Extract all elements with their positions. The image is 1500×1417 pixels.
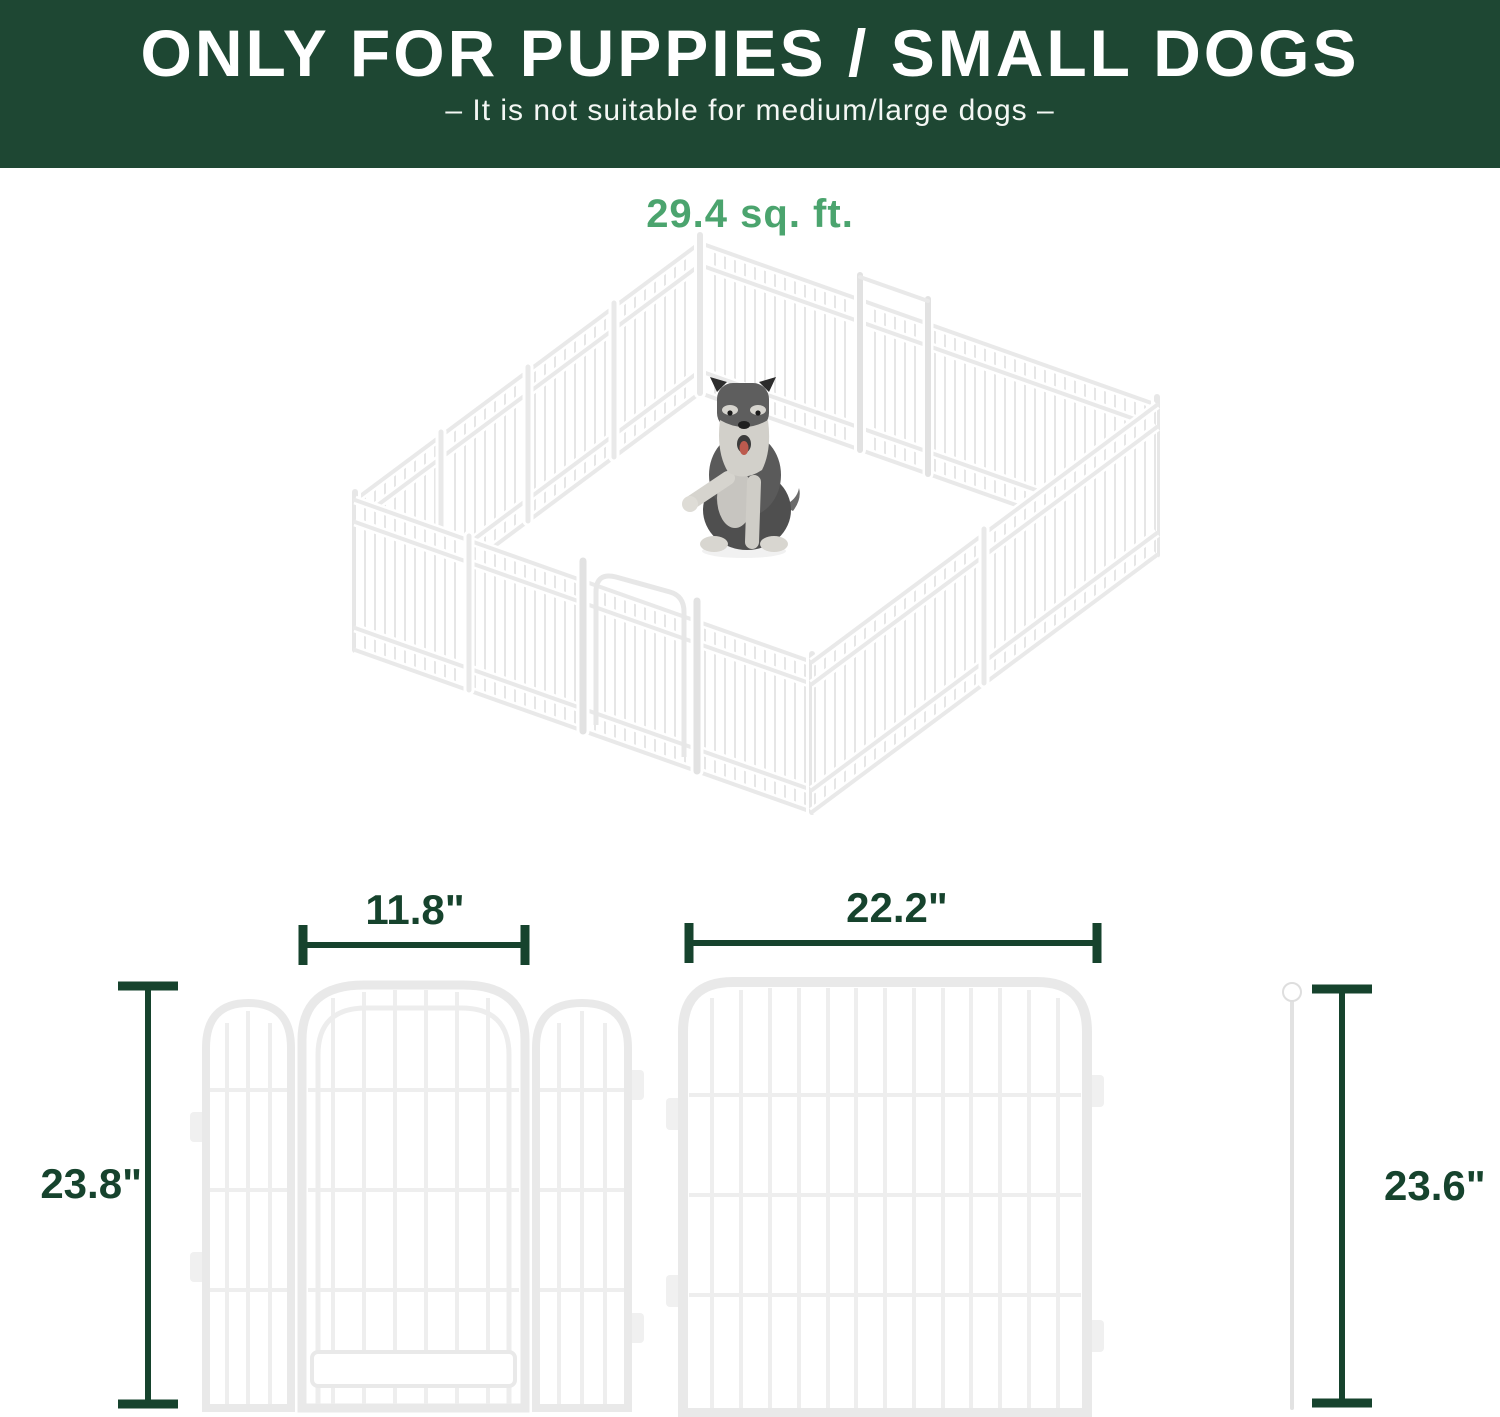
- dim-line-height-right: [1312, 989, 1372, 1403]
- connector-rod: [1283, 983, 1301, 1408]
- dim-label-rod-height: 23.6": [1384, 1162, 1500, 1210]
- product-infographic: ONLY FOR PUPPIES / SMALL DOGS – It is no…: [0, 0, 1500, 1417]
- banner-subtitle: – It is not suitable for medium/large do…: [0, 94, 1500, 128]
- dim-label-large-panel-width: 22.2": [693, 884, 1101, 932]
- panel-gate-center: [302, 985, 525, 1408]
- header-banner: ONLY FOR PUPPIES / SMALL DOGS – It is no…: [0, 0, 1500, 168]
- dimension-diagram: [0, 880, 1500, 1417]
- dim-label-small-panel-width: 11.8": [304, 886, 526, 934]
- playpen-illustration: [280, 220, 1220, 900]
- panel-narrow-right: [536, 1003, 644, 1408]
- dim-label-panel-height: 23.8": [14, 1160, 142, 1208]
- panel-large: [666, 982, 1104, 1413]
- panel-narrow-left: [190, 1003, 291, 1408]
- banner-title: ONLY FOR PUPPIES / SMALL DOGS: [0, 0, 1500, 86]
